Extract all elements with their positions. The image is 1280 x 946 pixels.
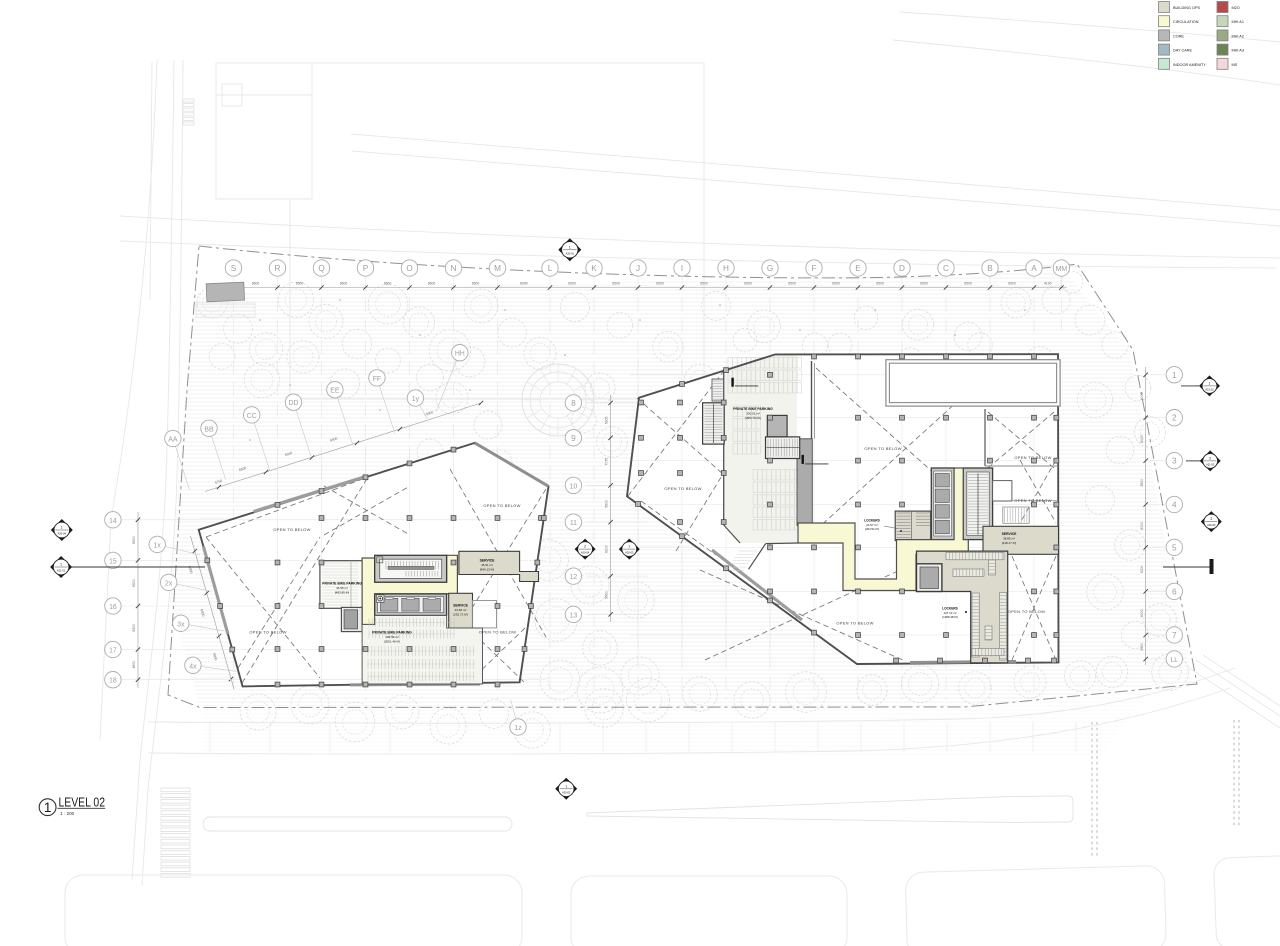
svg-text:A: A (1031, 264, 1037, 273)
svg-text:2: 2 (1210, 517, 1212, 521)
svg-text:OPEN TO BELOW: OPEN TO BELOW (249, 630, 286, 635)
svg-text:8: 8 (571, 399, 576, 408)
svg-text:BUILDING OPS: BUILDING OPS (1173, 6, 1200, 10)
svg-text:I: I (681, 264, 683, 273)
svg-text:DAY CARE: DAY CARE (1173, 49, 1193, 53)
svg-text:PRIVATE BIKE PARKING: PRIVATE BIKE PARKING (733, 407, 773, 411)
svg-text:B: B (987, 264, 993, 273)
svg-text:9: 9 (571, 434, 576, 443)
svg-text:SERVICE: SERVICE (480, 559, 496, 563)
svg-text:6500: 6500 (1140, 479, 1144, 487)
svg-text:6500: 6500 (788, 281, 796, 285)
svg-text:5600: 5600 (605, 500, 609, 508)
svg-text:PRIVATE BIKE PARKING: PRIVATE BIKE PARKING (322, 582, 362, 586)
svg-text:INDOOR AMENITY: INDOOR AMENITY (1173, 63, 1206, 67)
svg-text:16: 16 (109, 604, 117, 611)
svg-text:6500: 6500 (340, 281, 348, 285)
svg-text:1z: 1z (514, 725, 522, 732)
svg-text:4500: 4500 (132, 661, 136, 669)
svg-text:7075: 7075 (605, 458, 609, 466)
svg-text:1: 1 (628, 545, 630, 549)
svg-text:J: J (636, 264, 640, 273)
svg-text:6500: 6500 (964, 281, 972, 285)
svg-text:6200: 6200 (605, 545, 609, 553)
svg-text:A20-04: A20-04 (58, 532, 67, 536)
svg-text:P: P (363, 264, 369, 273)
svg-text:6500: 6500 (132, 536, 136, 544)
svg-text:S: S (231, 264, 237, 273)
svg-text:[418.17 ft²]: [418.17 ft²] (1002, 541, 1017, 545)
svg-text:AA: AA (168, 437, 178, 444)
svg-text:5: 5 (1172, 543, 1177, 552)
svg-text:6500: 6500 (384, 281, 392, 285)
svg-text:6000: 6000 (1140, 609, 1144, 617)
svg-text:6500: 6500 (252, 281, 260, 285)
svg-text:1: 1 (1172, 371, 1177, 380)
svg-text:1: 1 (565, 784, 567, 788)
svg-text:6500: 6500 (132, 579, 136, 587)
svg-text:MM: MM (1056, 266, 1068, 273)
svg-text:6000: 6000 (1140, 566, 1144, 574)
svg-text:FF: FF (373, 376, 381, 383)
svg-text:OPEN TO BELOW: OPEN TO BELOW (664, 486, 701, 491)
svg-text:MS: MS (1232, 63, 1238, 67)
svg-text:A20-02: A20-02 (562, 790, 571, 794)
svg-text:1y: 1y (412, 396, 420, 403)
svg-text:A20-04: A20-04 (581, 551, 590, 555)
svg-text:OPEN TO BELOW: OPEN TO BELOW (273, 527, 310, 532)
svg-text:OPEN TO BELOW: OPEN TO BELOW (1008, 609, 1045, 614)
svg-text:4: 4 (1172, 501, 1177, 510)
svg-text:1: 1 (1209, 382, 1211, 386)
svg-text:BB: BB (204, 426, 214, 433)
svg-text:3900: 3900 (1140, 643, 1144, 651)
svg-text:12: 12 (570, 574, 578, 581)
svg-text:G: G (767, 264, 773, 273)
svg-text:A20-03: A20-03 (625, 551, 634, 555)
svg-text:10: 10 (570, 483, 578, 490)
svg-text:6: 6 (1172, 587, 1177, 596)
svg-text:MHI A3: MHI A3 (1232, 49, 1244, 53)
svg-text:6500: 6500 (296, 281, 304, 285)
svg-text:5305: 5305 (605, 417, 609, 425)
svg-text:L: L (548, 264, 553, 273)
svg-text:6500: 6500 (568, 281, 576, 285)
svg-text:[483.85 ft²]: [483.85 ft²] (335, 590, 350, 594)
svg-text:O: O (406, 264, 412, 273)
svg-text:D: D (899, 264, 905, 273)
svg-text:8099: 8099 (520, 281, 528, 285)
svg-text:Q: Q (318, 264, 324, 273)
svg-text:6500: 6500 (132, 624, 136, 632)
svg-text:1: 1 (569, 245, 571, 249)
svg-text:OPEN TO BELOW: OPEN TO BELOW (864, 446, 901, 451)
svg-text:OPEN TO BELOW: OPEN TO BELOW (483, 503, 520, 508)
svg-text:6500: 6500 (472, 281, 480, 285)
svg-text:DD: DD (289, 400, 299, 407)
svg-text:MHI A1: MHI A1 (1232, 20, 1244, 24)
svg-text:A20-01: A20-01 (566, 251, 575, 255)
svg-text:14: 14 (109, 518, 117, 525)
svg-text:[264.51 ft²]: [264.51 ft²] (865, 527, 879, 531)
svg-text:H: H (723, 264, 729, 273)
svg-text:6500: 6500 (428, 281, 436, 285)
svg-text:CIRCULATION: CIRCULATION (1173, 20, 1199, 24)
svg-text:6000: 6000 (1140, 435, 1144, 443)
svg-text:F: F (811, 264, 816, 273)
svg-text:[1368.38 ft²]: [1368.38 ft²] (942, 615, 958, 619)
svg-text:[494.13 ft²]: [494.13 ft²] (480, 567, 495, 571)
svg-text:A20-03: A20-03 (1207, 523, 1216, 527)
svg-text:1x: 1x (154, 542, 162, 549)
svg-text:6500: 6500 (832, 281, 840, 285)
svg-text:K: K (591, 264, 597, 273)
svg-text:13: 13 (570, 612, 578, 619)
svg-text:6000: 6000 (1140, 392, 1144, 400)
svg-text:6500: 6500 (656, 281, 664, 285)
svg-text:1: 1 (61, 526, 63, 530)
svg-text:6000: 6000 (1140, 522, 1144, 530)
svg-text:CORE: CORE (1173, 34, 1184, 38)
svg-text:2: 2 (584, 545, 586, 549)
svg-text:7: 7 (1172, 631, 1177, 640)
svg-text:1 : 200: 1 : 200 (60, 811, 74, 816)
svg-text:PRIVATE BIKE PARKING: PRIVATE BIKE PARKING (372, 631, 412, 635)
svg-text:M2O: M2O (1232, 6, 1240, 10)
svg-text:17: 17 (109, 648, 117, 655)
svg-text:OPEN TO BELOW: OPEN TO BELOW (479, 630, 516, 635)
svg-text:R: R (275, 264, 281, 273)
svg-text:1: 1 (60, 563, 62, 567)
svg-text:3x: 3x (177, 621, 185, 628)
svg-text:6500: 6500 (744, 281, 752, 285)
svg-text:6500: 6500 (1008, 281, 1016, 285)
svg-text:[252.72 ft²]: [252.72 ft²] (453, 612, 468, 616)
svg-text:11: 11 (570, 520, 577, 527)
svg-text:HH: HH (455, 351, 465, 358)
svg-text:M: M (494, 264, 501, 273)
svg-text:E: E (855, 264, 861, 273)
svg-text:2x: 2x (165, 580, 173, 587)
svg-text:OPEN TO BELOW: OPEN TO BELOW (836, 621, 873, 626)
svg-text:15: 15 (109, 558, 117, 565)
svg-text:6500: 6500 (612, 281, 620, 285)
svg-text:A21-02: A21-02 (1206, 463, 1215, 467)
svg-text:4100: 4100 (1044, 281, 1052, 285)
svg-text:[3557.53 ft²]: [3557.53 ft²] (745, 416, 761, 420)
svg-text:3: 3 (1172, 457, 1177, 466)
svg-text:SERVICE: SERVICE (453, 604, 469, 608)
svg-text:5600: 5600 (605, 591, 609, 599)
svg-text:6500: 6500 (920, 281, 928, 285)
svg-text:CC: CC (247, 413, 257, 420)
svg-text:6500: 6500 (876, 281, 884, 285)
svg-text:4x: 4x (189, 663, 197, 670)
svg-text:A21-01: A21-01 (57, 569, 66, 573)
svg-text:18: 18 (109, 678, 117, 685)
svg-text:N: N (451, 264, 457, 273)
svg-text:C: C (943, 264, 949, 273)
svg-text:1: 1 (44, 800, 52, 815)
svg-text:6500: 6500 (700, 281, 708, 285)
svg-text:A21-02: A21-02 (1205, 388, 1214, 392)
svg-text:[2051.46 ft²]: [2051.46 ft²] (384, 639, 400, 643)
svg-text:2: 2 (1172, 414, 1177, 423)
svg-text:LL: LL (1170, 657, 1178, 664)
svg-text:EE: EE (330, 388, 340, 395)
svg-text:2: 2 (1209, 457, 1211, 461)
svg-text:MHI A2: MHI A2 (1232, 34, 1244, 38)
svg-text:SERVICE: SERVICE (1002, 532, 1018, 536)
svg-text:LEVEL 02: LEVEL 02 (59, 795, 106, 809)
